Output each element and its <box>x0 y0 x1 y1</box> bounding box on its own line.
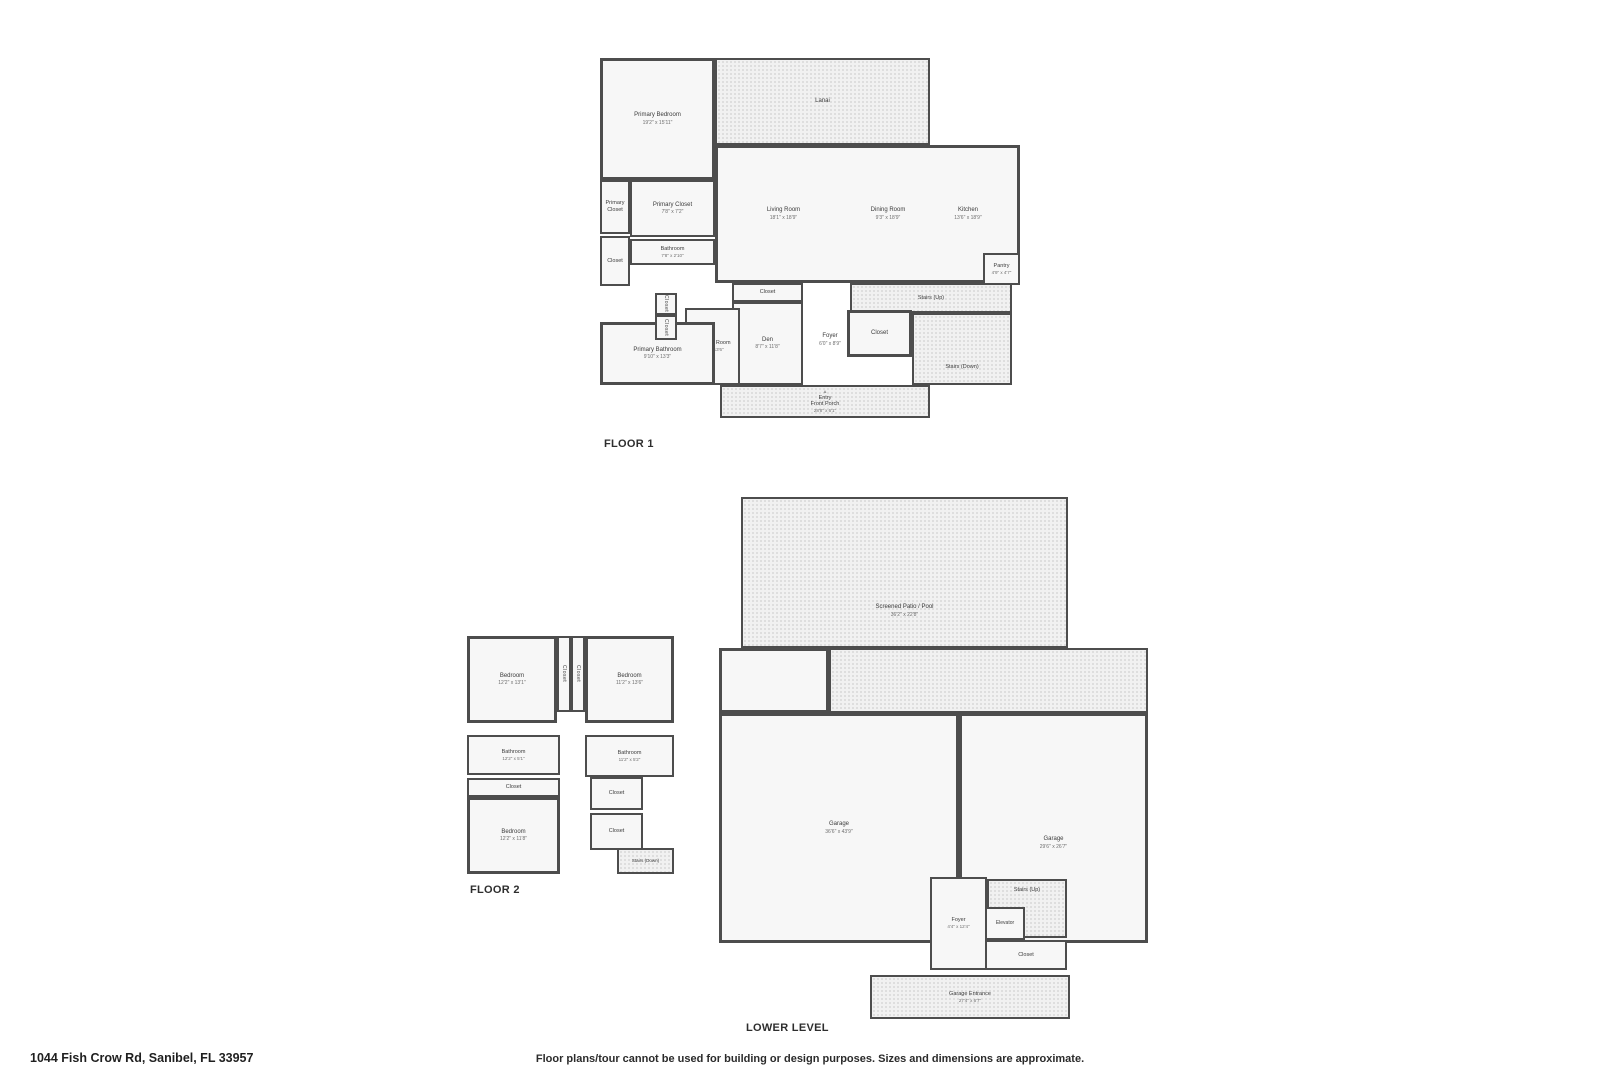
room-label: Primary Closet 7'8" x 7'2" <box>653 202 692 216</box>
room-dims: 7'8" x 7'2" <box>653 209 692 215</box>
room-name: Closet <box>575 665 581 682</box>
room-name: Closet <box>609 790 625 797</box>
floor1-plan: Primary Bedroom 19'2" x 15'11" Lanai Liv… <box>600 58 1020 418</box>
room-name: Bathroom <box>618 750 642 757</box>
entry-label: Entry <box>819 395 832 402</box>
room-label: Den 8'7" x 11'8" <box>755 337 779 351</box>
room-dims: 9'10" x 13'3" <box>633 354 681 360</box>
floor2-title: FLOOR 2 <box>470 884 520 896</box>
room-label: Closet <box>506 784 522 791</box>
room-label: Garage Entrance 27'4" x 6'7" <box>949 991 991 1004</box>
room-label: Stairs (Down) <box>632 858 659 864</box>
room-label: Closet <box>607 258 623 265</box>
room-dims: 12'2" x 13'1" <box>498 680 525 686</box>
room-label: Kitchen 13'6" x 18'9" <box>923 207 1013 221</box>
room-label: Pantry 4'9" x 4'7" <box>992 263 1012 276</box>
room-dims: 28'8" x 6'1" <box>814 408 836 413</box>
room-label: Garage 36'6" x 43'9" <box>825 821 852 835</box>
room-name: Closet <box>871 330 888 338</box>
floor1-open-living-area: Living Room 18'1" x 18'9" Dining Room 9'… <box>715 145 1020 283</box>
floor1-primary-bedroom: Primary Bedroom 19'2" x 15'11" <box>600 58 715 180</box>
room-name: Closet <box>561 665 567 682</box>
room-name: Foyer <box>947 917 969 924</box>
room-name: Bedroom <box>616 673 643 681</box>
floor2-bedroom-left: Bedroom 12'2" x 13'1" <box>467 636 557 723</box>
room-label: Closet <box>575 665 581 682</box>
room-name: Stairs (Down) <box>945 364 978 371</box>
room-name: Elevator <box>996 920 1014 926</box>
room-label: Primary Bedroom 19'2" x 15'11" <box>634 112 681 126</box>
room-dims: 9'3" x 18'9" <box>843 215 933 221</box>
room-dims: 4'4" x 12'4" <box>947 924 969 930</box>
room-label: Foyer 6'0" x 8'9" <box>819 333 841 347</box>
room-name: Bathroom <box>502 749 526 756</box>
room-dims: 12'2" x 11'8" <box>500 836 527 842</box>
room-label: Closet <box>760 289 776 296</box>
room-label: Elevator <box>996 920 1014 926</box>
room-label: Stairs (Up) <box>1014 887 1040 894</box>
room-label: Garage 29'6" x 26'7" <box>962 836 1145 850</box>
room-name: Closet <box>506 784 522 791</box>
room-label: Screened Patio / Pool 36'2" x 22'8" <box>743 604 1066 618</box>
room-name: Closet <box>607 258 623 265</box>
room-label: Living Room 18'1" x 18'9" <box>736 207 831 221</box>
room-dims: 11'2" x 13'6" <box>616 680 643 686</box>
room-label: Lanai <box>815 98 830 106</box>
room-name: Bedroom <box>500 829 527 837</box>
room-dims: 8'7" x 11'8" <box>755 344 779 350</box>
room-name: Kitchen <box>923 207 1013 215</box>
room-dims: 4'9" x 4'7" <box>992 270 1012 276</box>
room-name: Bedroom <box>498 673 525 681</box>
room-name: Screened Patio / Pool <box>743 604 1066 612</box>
room-name: Closet <box>760 289 776 296</box>
room-label: Bedroom 12'2" x 11'8" <box>500 829 527 843</box>
lower-garage-left-upper <box>719 648 829 713</box>
room-name: Dining Room <box>843 207 933 215</box>
room-name: Closet <box>663 319 669 336</box>
room-label: Stairs (Up) <box>918 295 944 302</box>
lower-level-plan: Screened Patio / Pool 36'2" x 22'8" Gara… <box>719 494 1148 1025</box>
lower-patio-extension <box>829 648 1148 713</box>
floor2-closet-column-1: Closet <box>557 636 571 712</box>
room-label: Bedroom 11'2" x 13'6" <box>616 673 643 687</box>
lower-closet: Closet <box>985 940 1067 970</box>
floorplan-page: Primary Bedroom 19'2" x 15'11" Lanai Liv… <box>0 0 1620 1080</box>
room-label: Dining Room 9'3" x 18'9" <box>843 207 933 221</box>
floor2-closet-right-2: Closet <box>590 813 643 850</box>
room-dims: 36'2" x 22'8" <box>743 612 1066 618</box>
floor1-den-closet: Closet <box>732 283 803 302</box>
room-dims: 13'6" x 18'9" <box>923 215 1013 221</box>
room-label: Closet <box>871 330 888 338</box>
lower-elevator: Elevator <box>985 907 1025 940</box>
floor2-plan: Bedroom 12'2" x 13'1" Closet Closet Bedr… <box>467 636 674 874</box>
room-name: Primary Closet <box>602 200 628 214</box>
floor2-closet-mid: Closet <box>467 778 560 797</box>
floor1-lanai: Lanai <box>715 58 930 145</box>
room-name: Front Porch <box>811 401 840 408</box>
room-name: Primary Closet <box>653 202 692 210</box>
floor1-stairs-down: Stairs (Down) <box>912 313 1012 385</box>
room-label: Primary Closet <box>602 200 628 214</box>
room-label: Stairs (Down) <box>945 364 978 371</box>
room-name: Closet <box>663 295 669 312</box>
floor2-bedroom-bottom: Bedroom 12'2" x 11'8" <box>467 797 560 874</box>
floor1-primary-closet: Primary Closet 7'8" x 7'2" <box>630 180 715 237</box>
room-name: Closet <box>1018 952 1034 959</box>
room-dims: 18'1" x 18'9" <box>736 215 831 221</box>
room-name: Pantry <box>992 263 1012 270</box>
room-dims: 12'2" x 5'1" <box>502 756 526 762</box>
lower-level-title: LOWER LEVEL <box>746 1022 829 1034</box>
lower-screened-patio: Screened Patio / Pool 36'2" x 22'8" <box>741 497 1068 648</box>
room-label: Closet <box>609 790 625 797</box>
room-name: Den <box>755 337 779 345</box>
room-dims: 27'4" x 6'7" <box>949 998 991 1004</box>
floor1-stairs-up: Stairs (Up) <box>850 283 1012 313</box>
property-address: 1044 Fish Crow Rd, Sanibel, FL 33957 <box>30 1051 253 1065</box>
room-name: Garage <box>962 836 1145 844</box>
room-name: Stairs (Up) <box>918 295 944 302</box>
floor2-closet-column-2: Closet <box>571 636 585 712</box>
floor2-bathroom-left: Bathroom 12'2" x 5'1" <box>467 735 560 775</box>
room-label: Closet <box>1018 952 1034 959</box>
room-name: Stairs (Up) <box>1014 887 1040 894</box>
room-name: Lanai <box>815 98 830 106</box>
room-name: Primary Bathroom <box>633 347 681 355</box>
room-name: Stairs (Down) <box>632 858 659 864</box>
lower-garage-left: Garage 36'6" x 43'9" <box>719 713 959 943</box>
floor1-den: Den 8'7" x 11'8" <box>732 302 803 385</box>
room-label: Primary Bathroom 9'10" x 13'3" <box>633 347 681 361</box>
disclaimer-text: Floor plans/tour cannot be used for buil… <box>536 1053 1084 1065</box>
room-name: Bathroom <box>661 246 685 253</box>
floor1-pantry: Pantry 4'9" x 4'7" <box>983 253 1020 285</box>
room-dims: 29'6" x 26'7" <box>962 844 1145 850</box>
floor1-front-porch: ▲ Entry Front Porch 28'8" x 6'1" <box>720 385 930 418</box>
room-name: Foyer <box>819 333 841 341</box>
room-name: Closet <box>609 828 625 835</box>
room-name: Garage Entrance <box>949 991 991 998</box>
room-dims: 11'2" x 5'2" <box>618 757 642 763</box>
lower-garage-entrance: Garage Entrance 27'4" x 6'7" <box>870 975 1070 1019</box>
floor2-bathroom-right: Bathroom 11'2" x 5'2" <box>585 735 674 777</box>
room-label: Closet <box>561 665 567 682</box>
floor1-primary-closet-small: Primary Closet <box>600 180 630 234</box>
floor2-stairs-down: Stairs (Down) <box>617 848 674 874</box>
room-label: Closet <box>663 319 669 336</box>
floor1-hall-closet-2: Closet <box>655 315 677 340</box>
room-name: Primary Bedroom <box>634 112 681 120</box>
floor1-stairs-closet: Closet <box>847 310 912 357</box>
floor1-closet-left: Closet <box>600 236 630 286</box>
room-dims: 36'6" x 43'9" <box>825 829 852 835</box>
room-name: Living Room <box>736 207 831 215</box>
room-dims: 7'8" x 2'10" <box>661 253 685 259</box>
floor1-title: FLOOR 1 <box>604 438 654 450</box>
room-label: Closet <box>663 295 669 312</box>
floor1-bathroom: Bathroom 7'8" x 2'10" <box>630 239 715 265</box>
floor2-bedroom-right: Bedroom 11'2" x 13'6" <box>585 636 674 723</box>
lower-foyer: Foyer 4'4" x 12'4" <box>930 877 987 970</box>
room-label: Foyer 4'4" x 12'4" <box>947 917 969 930</box>
room-label: Closet <box>609 828 625 835</box>
room-label: Bathroom 11'2" x 5'2" <box>618 750 642 763</box>
room-label: Bedroom 12'2" x 13'1" <box>498 673 525 687</box>
room-label: Bathroom 7'8" x 2'10" <box>661 246 685 259</box>
floor2-closet-right-1: Closet <box>590 777 643 810</box>
room-dims: 6'0" x 8'9" <box>819 341 841 347</box>
room-label: Bathroom 12'2" x 5'1" <box>502 749 526 762</box>
room-name: Garage <box>825 821 852 829</box>
floor1-hall-closet-1: Closet <box>655 293 677 315</box>
room-dims: 19'2" x 15'11" <box>634 120 681 126</box>
